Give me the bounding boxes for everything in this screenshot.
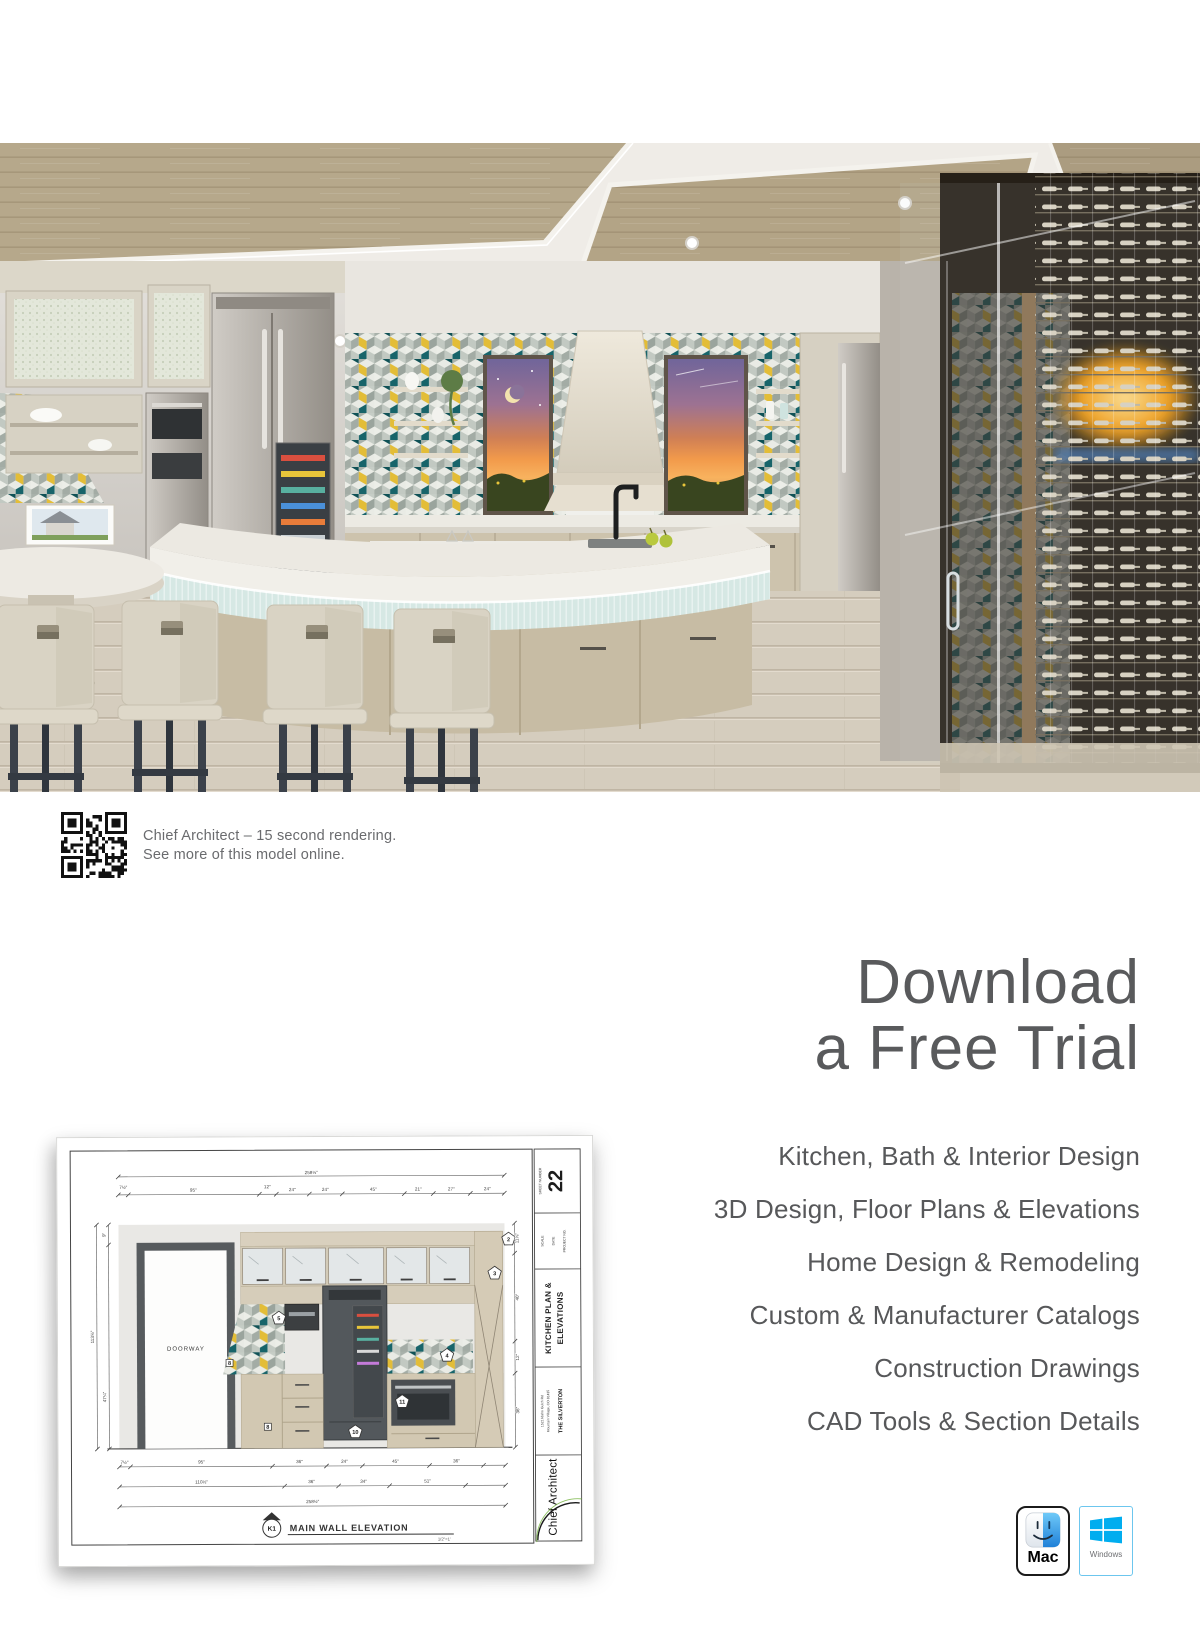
svg-text:95": 95" — [198, 1460, 205, 1465]
svg-text:Mountain Village, CO 81435: Mountain Village, CO 81435 — [546, 1390, 550, 1432]
svg-text:95": 95" — [190, 1188, 197, 1193]
tall-cabinet-right — [800, 333, 880, 615]
svg-text:258½": 258½" — [306, 1498, 320, 1504]
svg-text:11: 11 — [399, 1400, 405, 1406]
svg-text:36": 36" — [515, 1406, 520, 1413]
svg-text:36": 36" — [453, 1458, 460, 1463]
feature-list: Kitchen, Bath & Interior Design 3D Desig… — [714, 1130, 1140, 1448]
wall-elevation: DOORWAY — [106, 1223, 516, 1449]
svg-text:36": 36" — [308, 1479, 315, 1484]
title-block: SHEET NUMBER 22 SCALE DATE PROJECT NO. K… — [534, 1149, 582, 1542]
svg-text:258½": 258½" — [305, 1169, 319, 1175]
doorway: DOORWAY — [137, 1242, 236, 1448]
svg-text:1521 Idaho Gulch Rd: 1521 Idaho Gulch Rd — [540, 1395, 544, 1427]
svg-text:22: 22 — [545, 1170, 567, 1192]
glass-wall — [900, 183, 1200, 763]
svg-text:40": 40" — [515, 1293, 520, 1300]
svg-text:45": 45" — [370, 1187, 377, 1192]
window-right — [664, 355, 748, 515]
download-heading-line2: a Free Trial — [814, 1014, 1140, 1083]
feature-item: 3D Design, Floor Plans & Elevations — [714, 1183, 1140, 1236]
svg-text:K1: K1 — [268, 1526, 277, 1533]
svg-text:THE SILVERTON: THE SILVERTON — [558, 1389, 564, 1433]
platform-badges: Mac Windows — [1016, 1506, 1133, 1576]
svg-text:12": 12" — [515, 1353, 520, 1360]
svg-text:3: 3 — [493, 1271, 496, 1277]
tall-cabinet-elevation — [474, 1231, 503, 1447]
mac-badge: Mac — [1016, 1506, 1070, 1576]
coffee-machine — [285, 1304, 319, 1330]
sink — [588, 539, 652, 548]
kitchen-rendering-image — [0, 143, 1200, 792]
feature-item: CAD Tools & Section Details — [714, 1395, 1140, 1448]
svg-text:9": 9" — [101, 1232, 106, 1237]
qr-code — [61, 812, 127, 878]
window-left — [483, 355, 553, 515]
elevation-drawing: DOORWAY — [56, 1135, 595, 1567]
svg-text:Chief Architect: Chief Architect — [547, 1458, 559, 1536]
svg-text:110½": 110½" — [195, 1479, 208, 1485]
hanging-plant — [441, 370, 463, 392]
svg-text:SHEET NUMBER: SHEET NUMBER — [538, 1167, 542, 1194]
wine-cellar — [880, 173, 1200, 792]
svg-text:PROJECT NO.: PROJECT NO. — [562, 1230, 566, 1253]
svg-text:ELEVATIONS: ELEVATIONS — [556, 1291, 565, 1344]
feature-item: Kitchen, Bath & Interior Design — [714, 1130, 1140, 1183]
svg-text:8: 8 — [228, 1361, 231, 1367]
svg-text:45": 45" — [392, 1459, 399, 1464]
download-heading: Downloada Free Trial — [814, 950, 1140, 1082]
svg-text:21": 21" — [415, 1187, 422, 1192]
svg-text:51": 51" — [424, 1479, 431, 1484]
house-picture-frame — [26, 505, 114, 545]
qr-caption-line1: Chief Architect – 15 second rendering. — [143, 827, 396, 846]
svg-text:DATE: DATE — [551, 1236, 555, 1246]
svg-text:36": 36" — [296, 1459, 303, 1464]
svg-text:24": 24" — [289, 1187, 296, 1192]
feature-item: Home Design & Remodeling — [714, 1236, 1140, 1289]
svg-text:1/2"=1': 1/2"=1' — [438, 1536, 451, 1541]
magazine-page: Chief Architect – 15 second rendering. S… — [0, 0, 1200, 1639]
svg-text:DOORWAY: DOORWAY — [167, 1347, 205, 1353]
finder-icon — [1025, 1512, 1061, 1548]
svg-text:113⅝": 113⅝" — [90, 1330, 95, 1343]
svg-text:34": 34" — [360, 1479, 367, 1484]
svg-text:5: 5 — [277, 1316, 280, 1322]
qr-caption-line2: See more of this model online. — [143, 846, 396, 865]
svg-text:24": 24" — [322, 1187, 329, 1192]
svg-text:KITCHEN PLAN &: KITCHEN PLAN & — [544, 1282, 553, 1354]
mac-label: Mac — [1027, 1549, 1058, 1567]
svg-text:11⅝": 11⅝" — [514, 1233, 519, 1244]
svg-text:SCALE: SCALE — [540, 1235, 544, 1247]
download-heading-line1: Download — [856, 948, 1140, 1017]
svg-text:7½": 7½" — [119, 1184, 127, 1190]
svg-text:12": 12" — [264, 1184, 271, 1189]
windows-label: Windows — [1090, 1550, 1122, 1559]
backsplash-right — [387, 1339, 473, 1373]
svg-text:27": 27" — [448, 1186, 455, 1191]
windows-badge: Windows — [1079, 1506, 1133, 1576]
svg-text:MAIN WALL ELEVATION: MAIN WALL ELEVATION — [290, 1523, 409, 1534]
svg-text:8: 8 — [266, 1425, 269, 1431]
feature-item: Construction Drawings — [714, 1342, 1140, 1395]
qr-caption: Chief Architect – 15 second rendering. S… — [143, 827, 396, 865]
svg-text:24": 24" — [484, 1186, 491, 1191]
svg-text:7½": 7½" — [120, 1459, 128, 1465]
svg-text:2: 2 — [507, 1237, 510, 1243]
svg-text:10: 10 — [352, 1430, 358, 1436]
fridge-elevation — [323, 1286, 388, 1440]
svg-text:24": 24" — [341, 1459, 348, 1464]
feature-item: Custom & Manufacturer Catalogs — [714, 1289, 1140, 1342]
construction-drawing-sheet: DOORWAY — [56, 1135, 595, 1567]
svg-text:47¼": 47¼" — [102, 1391, 107, 1402]
windows-logo-icon — [1090, 1516, 1122, 1544]
